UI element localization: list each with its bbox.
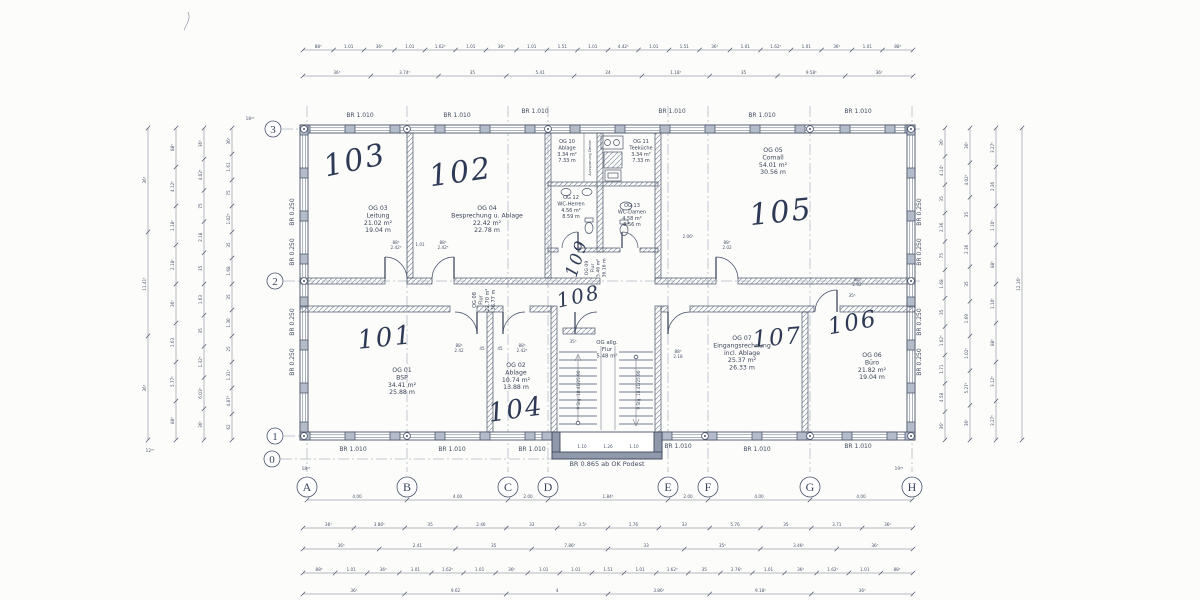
grid-col-c: C (498, 477, 518, 497)
dim-value: 36⁵ (797, 567, 804, 572)
wall-pier (525, 432, 535, 440)
dim-value: 1.01 (466, 44, 476, 49)
dim-value: 1.01 (405, 44, 415, 49)
grid-col-b: B (397, 477, 417, 497)
dim-value: 35 (741, 70, 747, 75)
dim-value: 4.12⁵ (170, 181, 175, 192)
dim-value: 3.12⁵ (990, 376, 995, 387)
scanned-floor-plan-page: 9 Stg. 18.41/25.90 9 Stg. 18.41/25.90 1.… (0, 0, 1200, 600)
dim-value: 35 (198, 265, 203, 271)
dim-value: 36⁵ (142, 176, 147, 183)
corner-mark: 18²⁹ (302, 466, 311, 471)
svg-text:3: 3 (270, 124, 276, 136)
svg-text:88⁵2.42⁵: 88⁵2.42⁵ (390, 240, 401, 250)
dim-value: 4.00 (754, 494, 764, 499)
dim-value: 4.00 (453, 494, 463, 499)
handwritten-101: 101 (356, 320, 414, 356)
dim-value: 35⁵ (719, 543, 726, 548)
door-106 (815, 290, 837, 312)
wall-pier (615, 125, 625, 133)
dim-value: 33 (682, 522, 688, 527)
br-side-label: BR 0.250 (289, 308, 296, 336)
room-info-og13: OG 13WC-Damen4.58 m²8.56 m (618, 203, 646, 228)
wall-pier (480, 125, 490, 133)
dim-value: 1.30 (226, 318, 231, 328)
dim-value: 88⁵ (893, 567, 900, 572)
br-label: BR 1.010 (743, 446, 771, 453)
dim-value: 1.01 (863, 44, 873, 49)
dim-value: 4.00 (352, 494, 362, 499)
counter-icon (605, 170, 621, 181)
room-info-og12: OG 12WC-Herren4.56 m²8.59 m (557, 195, 584, 220)
dim-value: 1.76 (629, 522, 639, 527)
dim-value: 36⁵ (964, 142, 969, 149)
dim-value: 2.00 (523, 494, 533, 499)
dim-value: 1.62⁵ (442, 567, 453, 572)
handwritten-104: 104 (486, 391, 545, 428)
room-info-og01: OG 01BSP34.41 m²25.88 m (388, 367, 417, 396)
kitchen-sink-icon (601, 136, 623, 149)
grid-col-d: D (538, 477, 558, 497)
wall-pier (300, 340, 308, 350)
dim-chain: 36⁵4.02⁵352.36351.691.02⁵5.27⁵36⁵ (964, 126, 972, 442)
dim-value: 1.31⁵ (226, 369, 231, 380)
grid-col-a: A (297, 477, 317, 497)
wall-pier (660, 125, 670, 133)
svg-text:D: D (544, 480, 553, 494)
landing-dim: 1.26 (603, 444, 613, 449)
dim-value: 36⁵ (711, 44, 718, 49)
dim-value: 36⁵ (376, 44, 383, 49)
svg-text:Aussparung Decke: Aussparung Decke (587, 140, 592, 176)
dim-value: 35 (491, 543, 497, 548)
dim-chain-axis: 4.004.002.001.84⁵2.004.004.00 (305, 494, 914, 502)
corner-mark: 19³³ (895, 466, 904, 471)
svg-text:OG 08Flur22.70 m²36.77 m: OG 08Flur22.70 m²36.77 m (472, 289, 497, 312)
door-107 (668, 312, 690, 334)
dim-value: 5.76 (730, 522, 740, 527)
dim-value: 36⁵ (876, 70, 883, 75)
br-side-label: BR 0.250 (289, 348, 296, 376)
dim-value: 5.41 (536, 70, 546, 75)
dim-chain: 36⁵2.41357.86⁵3335⁵3.46⁵36⁵ (301, 543, 915, 551)
dim-value: 35 (427, 522, 433, 527)
dim-value: 36⁵ (508, 567, 515, 572)
br-label: BR 1.010 (443, 112, 471, 119)
br-label: BR 1.010 (844, 443, 872, 450)
br-label: BR 1.010 (339, 446, 367, 453)
dim-value: 36⁵ (884, 522, 891, 527)
dim-value: 35 (470, 70, 476, 75)
svg-text:88⁵2.42⁵: 88⁵2.42⁵ (516, 343, 527, 353)
door-104 (503, 312, 525, 334)
svg-text:2.06⁵: 2.06⁵ (682, 234, 693, 239)
svg-text:1: 1 (272, 431, 278, 443)
door-102 (432, 257, 454, 279)
grid-col-e: E (658, 477, 678, 497)
wall-pier (435, 432, 445, 440)
dim-value: 88⁵ (316, 567, 323, 572)
dim-chain: 88⁵1.0136⁵1.011.62⁵1.0136⁵1.011.011.511.… (301, 567, 915, 575)
svg-text:2: 2 (272, 276, 278, 288)
dim-value: 88⁵ (990, 261, 995, 268)
dim-value: 3.86⁵ (374, 522, 385, 527)
dim-value: 12.16⁵ (1016, 277, 1021, 291)
dim-value: 75 (198, 203, 203, 209)
grid-row-0: 0 (264, 451, 280, 467)
wall-pier (525, 125, 535, 133)
dim-value: 4.14⁵ (939, 165, 944, 176)
svg-text:35⁵: 35⁵ (848, 293, 855, 298)
door-101 (455, 312, 477, 334)
dim-chain: 36⁵3.86⁵352.46333.5⁵1.76335.76353.7136⁵ (301, 522, 915, 530)
dim-chain: 36⁵1.61751.02⁵351.68351.30251.31⁵4.87⁵62 (226, 126, 234, 442)
dim-value: 1.01 (344, 44, 354, 49)
dim-value: 35 (198, 328, 203, 334)
dim-value: 33 (643, 543, 649, 548)
dim-value: 88⁵ (990, 339, 995, 346)
landing-dim: 1.10 (629, 444, 639, 449)
dim-value: 1.01 (527, 44, 537, 49)
wall-pier (542, 432, 552, 440)
wall-pier (300, 383, 308, 393)
svg-text:E: E (664, 480, 671, 494)
room-info-og08: OG 08Flur22.70 m²36.77 m (472, 289, 497, 312)
dim-value: 4.00 (856, 494, 866, 499)
dim-value: 1.01 (635, 567, 645, 572)
dim-value: 2.46 (476, 522, 486, 527)
dim-chain: 36⁵4.14⁵352.36751.68351.02⁵1.714.5836⁵ (939, 126, 947, 442)
dim-value: 35 (964, 281, 969, 287)
dim-value: 7.86⁵ (564, 543, 575, 548)
dim-value: 35 (939, 309, 944, 315)
handwritten-103: 103 (320, 137, 389, 184)
stair-note-right: 9 Stg. 18.41/25.90 (636, 370, 641, 409)
dim-value: 36⁵ (859, 588, 866, 593)
svg-text:F: F (705, 480, 712, 494)
svg-text:88⁵2.18: 88⁵2.18 (673, 349, 683, 359)
dim-value: 3.27⁵ (990, 415, 995, 426)
floor-plan-canvas: 9 Stg. 18.41/25.90 9 Stg. 18.41/25.90 1.… (0, 0, 1200, 600)
svg-text:45: 45 (479, 346, 485, 351)
dim-value: 1.51 (680, 44, 690, 49)
handwritten-108: 108 (554, 280, 602, 313)
wall-pier (300, 422, 308, 432)
dim-value: 35 (226, 294, 231, 300)
dim-chain: 3.27⁵2.361.10⁵88⁵1.10⁵88⁵3.12⁵3.27⁵ (990, 126, 998, 442)
wall-pier (907, 168, 915, 178)
br-label: BR 1.010 (521, 108, 549, 115)
dim-value: 1.02⁵ (939, 335, 944, 346)
br-side-label: BR 0.250 (916, 238, 923, 266)
wall-pier (907, 383, 915, 393)
corner-mark: 18²⁵ (246, 116, 255, 121)
wall-pier (345, 125, 355, 133)
dim-value: 2.36 (964, 244, 969, 254)
wall-pier (885, 125, 895, 133)
wall-pier (795, 125, 805, 133)
dim-value: 9.18⁵ (755, 588, 766, 593)
dim-value: 62 (226, 424, 231, 430)
dim-value: 25 (226, 346, 231, 352)
dim-value: 36⁵ (964, 419, 969, 426)
br-label: BR 1.010 (748, 112, 776, 119)
dim-value: 2.36 (990, 182, 995, 192)
dim-value: 1.51 (558, 44, 568, 49)
dim-value: 1.01 (539, 567, 549, 572)
podest-note: BR 0.865 ab OK Podest (569, 460, 645, 468)
wall-pier (907, 340, 915, 350)
br-side-label: BR 0.250 (289, 198, 296, 226)
room-info-og05: OG 05Comall54.01 m²30.56 m (759, 147, 788, 176)
wall-pier (705, 125, 715, 133)
cooktop-icon (604, 152, 622, 168)
dim-value: 1.01 (411, 567, 421, 572)
dim-value: 1.10⁵ (990, 298, 995, 309)
br-label: BR 1.010 (658, 108, 686, 115)
svg-text:0: 0 (269, 454, 275, 466)
wall-pier (842, 432, 852, 440)
dim-value: 35 (964, 212, 969, 218)
room-info-og04: OG 04Besprechung u. Ablage22.42 m²22.78 … (451, 205, 523, 234)
svg-text:88⁵2.42⁵: 88⁵2.42⁵ (437, 240, 448, 250)
dim-value: 1.01 (475, 567, 485, 572)
dim-value: 3.46⁵ (793, 543, 804, 548)
dim-value: 33 (529, 522, 535, 527)
dim-value: 36⁵ (226, 137, 231, 144)
dim-value: 6.03⁵ (198, 387, 203, 398)
handwritten-106: 106 (826, 306, 880, 340)
wall-pier (750, 125, 760, 133)
grid-col-f: F (698, 477, 718, 497)
dim-value: 2.18 (198, 232, 203, 242)
wall-pier (662, 432, 672, 440)
wall-pier (797, 432, 807, 440)
dim-chain: 88⁵1.0136⁵1.011.62⁵1.0136⁵1.011.511.014.… (301, 44, 915, 52)
toilet-icon (585, 218, 593, 222)
dim-value: 1.84⁵ (602, 494, 613, 499)
dim-value: 3.86⁵ (653, 588, 664, 593)
grid-row-2: 2 (267, 273, 283, 289)
room-info-og06: OG 06Büro21.82 m²19.04 m (858, 352, 887, 381)
dim-value: 11.41⁵ (142, 277, 147, 291)
wall-pier (300, 254, 308, 264)
br-label: BR 1.010 (844, 108, 872, 115)
dim-value: 36⁵ (939, 138, 944, 145)
br-side-label: BR 0.250 (916, 308, 923, 336)
room-info-og09: OG 09Flur5.46 m²36.16 m (584, 258, 607, 278)
dim-chain: 36⁵9.6243.86⁵9.18⁵36⁵ (301, 588, 915, 596)
wall-pier (345, 432, 355, 440)
dim-value: 36⁵ (198, 140, 203, 147)
dim-value: 88⁵ (315, 44, 322, 49)
dim-value: 1.61 (226, 162, 231, 172)
dim-value: 35 (783, 522, 789, 527)
dim-chain: 36⁵11.41⁵36⁵ (142, 126, 150, 442)
wall-pier (907, 297, 915, 307)
dim-value: 2.76⁵ (731, 567, 742, 572)
dim-value: 35 (939, 196, 944, 202)
dim-value: 88⁵ (170, 417, 175, 424)
dim-value: 4 (556, 588, 559, 593)
svg-text:OG 09Flur5.46 m²36.16 m: OG 09Flur5.46 m²36.16 m (584, 258, 607, 278)
wall-pier (907, 254, 915, 264)
dim-value: 1.68 (939, 279, 944, 289)
dim-value: 1.01 (588, 44, 598, 49)
dim-value: 88⁵ (170, 144, 175, 151)
wall-pier (390, 432, 400, 440)
dim-value: 2.00 (683, 494, 693, 499)
dim-value: 1.32⁵ (198, 356, 203, 367)
svg-text:1.01: 1.01 (415, 242, 425, 247)
wall-pier (907, 211, 915, 221)
svg-text:B: B (403, 480, 411, 494)
dim-value: 3.71 (832, 522, 842, 527)
dim-value: 1.01 (649, 44, 659, 49)
svg-text:88⁵2.02: 88⁵2.02 (722, 240, 732, 250)
dim-value: 1.01 (571, 567, 581, 572)
br-side-label: BR 0.250 (916, 348, 923, 376)
dim-value: 75 (226, 190, 231, 196)
dim-value: 24 (605, 70, 611, 75)
grid-col-g: G (800, 477, 820, 497)
dim-value: 4.87⁵ (226, 395, 231, 406)
svg-text:35⁵: 35⁵ (569, 339, 576, 344)
shaft-label: Aussparung Decke (587, 140, 592, 176)
dim-value: 1.71 (939, 364, 944, 374)
dim-value: 9.62 (451, 588, 461, 593)
sink-icon (582, 189, 592, 196)
dim-value: 36⁵ (833, 44, 840, 49)
dim-chain: 36⁵4.02⁵752.18351.63351.32⁵6.03⁵36⁵ (198, 126, 206, 442)
dim-value: 1.68 (226, 266, 231, 276)
dim-value: 36⁵ (142, 384, 147, 391)
dim-value: 4.42⁵ (618, 44, 629, 49)
dim-value: 1.02⁵ (226, 213, 231, 224)
dim-value: 3.74⁵ (399, 70, 410, 75)
dim-value: 1.01 (860, 567, 870, 572)
dim-value: 75 (939, 253, 944, 259)
door-105 (716, 257, 738, 279)
br-side-label: BR 0.250 (916, 198, 923, 226)
dim-value: 1.62⁵ (667, 567, 678, 572)
handwritten-107: 107 (751, 323, 803, 353)
wall-pier (300, 168, 308, 178)
wall-pier (300, 297, 308, 307)
toilet-icon (585, 223, 593, 234)
stair-note-left: 9 Stg. 18.41/25.90 (576, 370, 581, 409)
room-info-og03: OG 03Leitung21.02 m²19.04 m (364, 205, 393, 234)
dim-value: 3.5⁵ (578, 522, 587, 527)
door-103 (385, 257, 407, 279)
dim-value: 1.63 (198, 295, 203, 305)
dim-chain: 36⁵3.74⁵355.41241.18⁵359.58⁵36⁵ (301, 70, 915, 78)
wall-pier (480, 432, 490, 440)
door-wc-damen (622, 232, 638, 248)
dim-chain: 12.16⁵ (1016, 126, 1024, 442)
dim-value: 88⁵ (894, 44, 901, 49)
room-info-og11: OG 11Teeküche3.34 m²7.33 m (628, 139, 652, 164)
dim-value: 1.01 (346, 567, 356, 572)
dim-value: 1.18⁵ (670, 70, 681, 75)
grid-row-1: 1 (267, 428, 283, 444)
dim-value: 1.10⁵ (990, 220, 995, 231)
dim-value: 36⁵ (350, 588, 357, 593)
wall-pier (390, 125, 400, 133)
svg-text:45: 45 (497, 346, 503, 351)
br-label: BR 1.010 (346, 112, 374, 119)
dim-value: 36⁵ (325, 522, 332, 527)
dim-value: 36⁵ (380, 567, 387, 572)
landing-dim: 1.10 (577, 444, 587, 449)
dim-value: 36⁵ (198, 421, 203, 428)
dim-value: 3.27⁵ (990, 142, 995, 153)
dim-value: 36⁵ (498, 44, 505, 49)
grid-col-h: H (902, 477, 922, 497)
dim-value: 36⁵ (170, 300, 175, 307)
dim-value: 2.36 (939, 222, 944, 232)
dim-value: 36⁵ (333, 70, 340, 75)
wall-pier (840, 125, 850, 133)
dim-value: 35 (226, 242, 231, 248)
dim-value: 5.77⁵ (170, 376, 175, 387)
dim-value: 1.63 (170, 338, 175, 348)
room-info-og02: OG 02Ablage10.74 m²13.88 m (502, 362, 531, 391)
grid-row-3: 3 (265, 121, 281, 137)
dim-value: 1.62⁵ (435, 44, 446, 49)
dim-value: 1.02⁵ (964, 348, 969, 359)
svg-text:A: A (303, 480, 312, 494)
dim-value: 2.41 (413, 543, 423, 548)
dim-chain: 88⁵4.12⁵1.18⁵2.18⁵36⁵1.635.77⁵88⁵ (170, 126, 178, 442)
dim-value: 1.01 (802, 44, 812, 49)
br-side-label: BR 0.250 (289, 238, 296, 266)
wall-pier (907, 422, 915, 432)
dim-value: 2.18⁵ (170, 259, 175, 270)
dim-value: 4.02⁵ (198, 169, 203, 180)
dim-value: 36⁵ (338, 543, 345, 548)
dim-value: 4.02⁵ (964, 174, 969, 185)
wall-pier (752, 432, 762, 440)
dim-value: 1.69 (964, 314, 969, 324)
dim-value: 1.62⁵ (827, 567, 838, 572)
interior-walls (300, 133, 915, 459)
handwritten-102: 102 (427, 151, 495, 194)
svg-text:88⁵2.42: 88⁵2.42 (454, 343, 464, 353)
corner-mark: 12⁶⁰ (146, 448, 155, 453)
svg-text:H: H (908, 480, 917, 494)
br-label: BR 1.010 (518, 446, 546, 453)
dim-value: 1.01 (764, 567, 774, 572)
dim-value: 1.51 (603, 567, 613, 572)
dim-value: 36⁵ (871, 543, 878, 548)
dim-value: 1.01 (741, 44, 751, 49)
wall-pier (887, 432, 897, 440)
br-label: BR 1.010 (438, 446, 466, 453)
handwritten-105: 105 (748, 192, 815, 233)
dim-value: 1.18⁵ (170, 220, 175, 231)
room-info-og10: OG 10Ablage3.34 m²7.33 m (557, 139, 577, 164)
wall-pier (570, 125, 580, 133)
dim-value: 1.62⁵ (770, 44, 781, 49)
svg-text:G: G (806, 480, 815, 494)
dim-value: 9.58⁵ (806, 70, 817, 75)
wall-pier (435, 125, 445, 133)
dim-value: 4.58 (939, 392, 944, 402)
dim-value: 35 (702, 567, 708, 572)
dim-value: 5.27⁵ (964, 382, 969, 393)
wall-pier (300, 211, 308, 221)
